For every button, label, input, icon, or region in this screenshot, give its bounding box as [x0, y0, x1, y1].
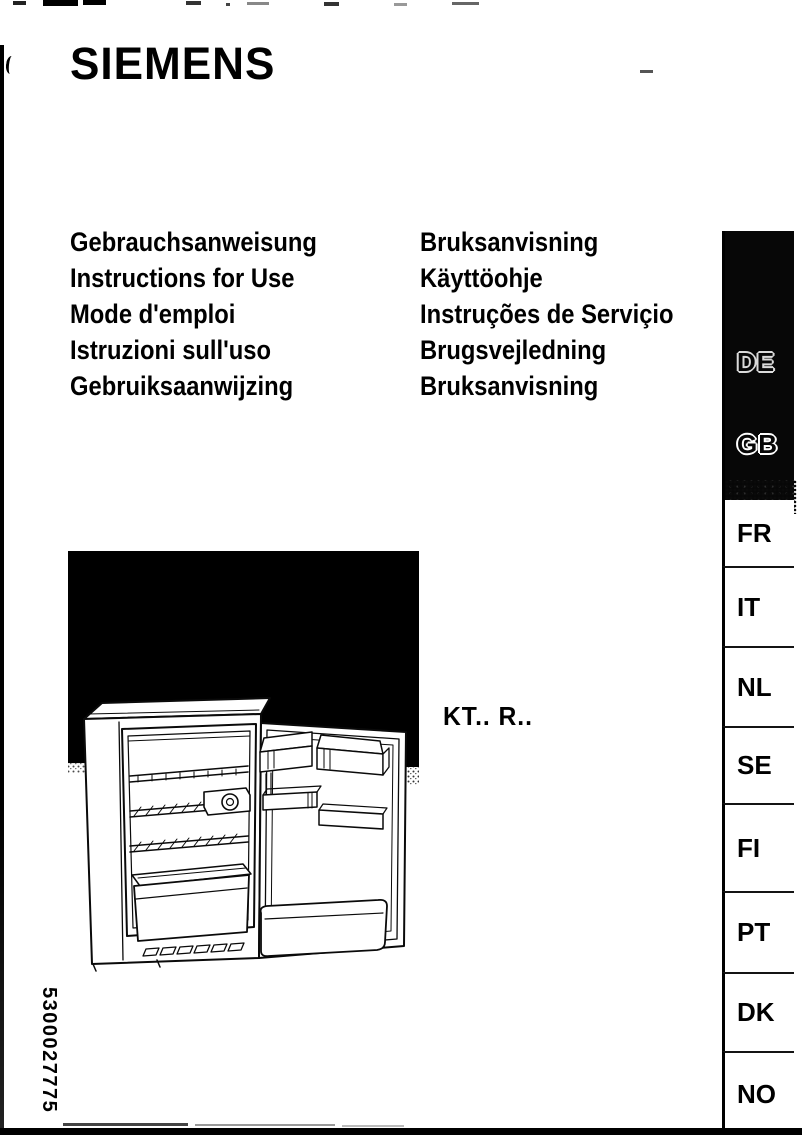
manual-title-en: Instructions for Use [70, 260, 317, 296]
manual-title-no: Bruksanvisning [420, 368, 674, 404]
manual-title-dk: Brugsvejledning [420, 332, 674, 368]
tab-label: DK [737, 997, 775, 1028]
scan-artifact [63, 1123, 188, 1126]
scan-artifact [342, 1125, 404, 1127]
scan-artifact [83, 0, 106, 5]
tab-pt: PT [722, 891, 794, 972]
manual-cover-page: SIEMENS Gebrauchsanweisung Instructions … [0, 0, 802, 1135]
manual-title-de: Gebrauchsanweisung [70, 224, 317, 260]
manual-title-fr: Mode d'emploi [70, 296, 317, 332]
manual-title-nl: Gebruiksaanwijzing [70, 368, 317, 404]
tab-dk: DK [722, 972, 794, 1051]
manual-title-it: Istruzioni sull'uso [70, 332, 317, 368]
scan-artifact [43, 0, 78, 6]
scan-artifact [324, 2, 339, 6]
refrigerator-drawing [84, 698, 406, 971]
manual-title-fi: Käyttöohje [420, 260, 674, 296]
scan-artifact [0, 45, 4, 1130]
refrigerator-illustration [62, 545, 422, 977]
tab-label: FI [737, 833, 760, 864]
language-tabs-dark-block: DE GB [722, 231, 794, 500]
tab-label: SE [737, 750, 772, 781]
scan-artifact [5, 56, 17, 75]
scan-artifact [394, 3, 407, 6]
tab-it: IT [722, 566, 794, 646]
tab-label: NO [737, 1079, 776, 1110]
brand-logo: SIEMENS [70, 38, 275, 90]
tab-label: PT [737, 917, 770, 948]
scan-artifact [452, 2, 479, 5]
tab-nl: NL [722, 646, 794, 726]
title-column-right: Bruksanvisning Käyttöohje Instruções de … [420, 224, 674, 404]
tab-se: SE [722, 726, 794, 803]
tab-no: NO [722, 1051, 794, 1135]
scan-artifact [247, 2, 269, 5]
scan-artifact [13, 1, 26, 5]
scan-artifact [640, 70, 653, 73]
tab-fi: FI [722, 803, 794, 891]
model-code: KT.. R.. [443, 701, 533, 732]
manual-title-se: Bruksanvisning [420, 224, 674, 260]
scan-artifact [195, 1124, 335, 1126]
tab-label: FR [737, 518, 772, 549]
scan-artifact [186, 1, 201, 5]
tab-gb: GB [737, 429, 778, 460]
scan-artifact [0, 1128, 802, 1135]
tab-label: IT [737, 592, 760, 623]
tab-fr: FR [722, 500, 794, 566]
manual-title-pt: Instruções de Serviçio [420, 296, 674, 332]
document-number: 5300027775 [37, 987, 60, 1113]
scan-artifact [226, 3, 230, 6]
language-sidebar: DE GB FR IT NL SE FI PT DK NO [722, 231, 794, 1135]
tab-label: NL [737, 672, 772, 703]
tab-de: DE [737, 347, 775, 378]
title-column-left: Gebrauchsanweisung Instructions for Use … [70, 224, 317, 404]
